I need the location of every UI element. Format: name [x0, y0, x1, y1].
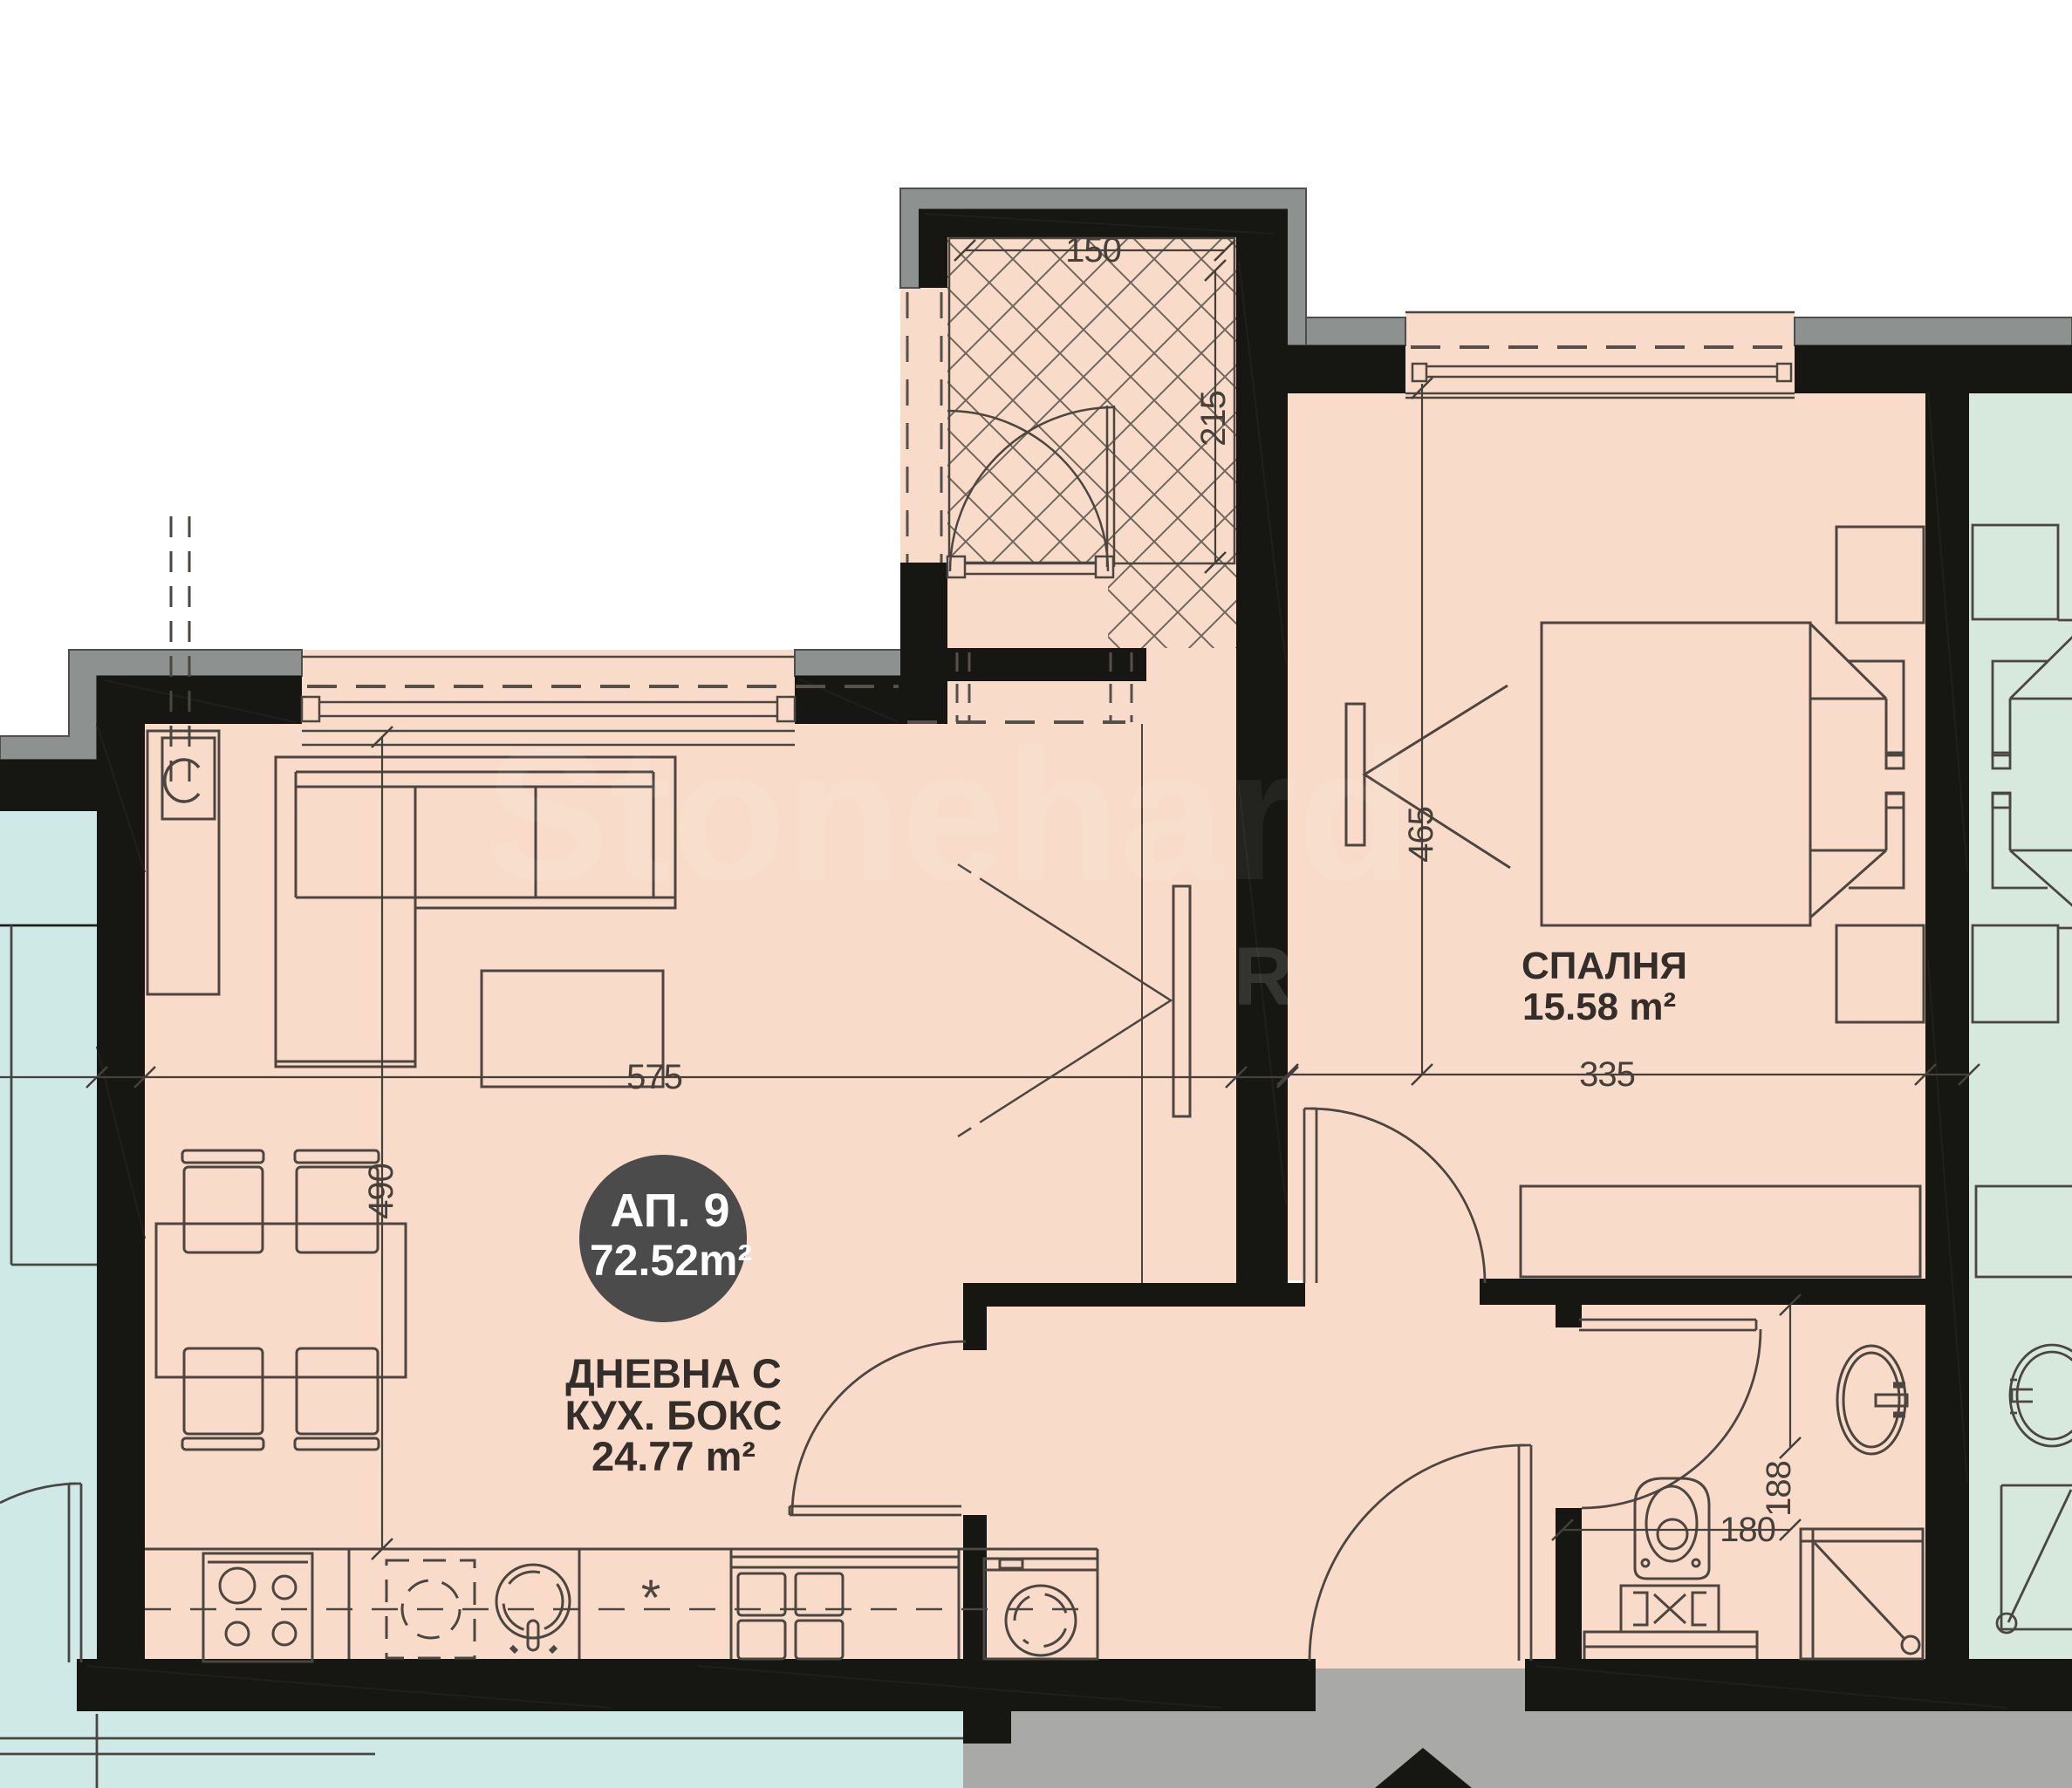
svg-text:180: 180: [1720, 1511, 1775, 1549]
svg-text:КУХ. БОКС: КУХ. БОКС: [565, 1392, 783, 1438]
svg-text:335: 335: [1579, 1055, 1635, 1094]
svg-text:575: 575: [626, 1058, 682, 1096]
svg-text:ДНЕВНА С: ДНЕВНА С: [565, 1350, 782, 1396]
svg-text:150: 150: [1065, 231, 1121, 270]
svg-text:СПАЛНЯ: СПАЛНЯ: [1522, 945, 1687, 987]
svg-text:215: 215: [1194, 391, 1233, 447]
svg-text:R: R: [1234, 931, 1294, 1023]
svg-text:490: 490: [362, 1164, 400, 1219]
svg-text:Stonehard: Stonehard: [484, 709, 1412, 919]
svg-text:*: *: [641, 1570, 661, 1627]
svg-text:15.58 m²: 15.58 m²: [1522, 986, 1676, 1028]
svg-text:188: 188: [1760, 1461, 1798, 1517]
svg-text:72.52m²: 72.52m²: [590, 1236, 752, 1285]
svg-text:АП. 9: АП. 9: [610, 1184, 729, 1237]
svg-text:24.77 m²: 24.77 m²: [592, 1433, 756, 1479]
